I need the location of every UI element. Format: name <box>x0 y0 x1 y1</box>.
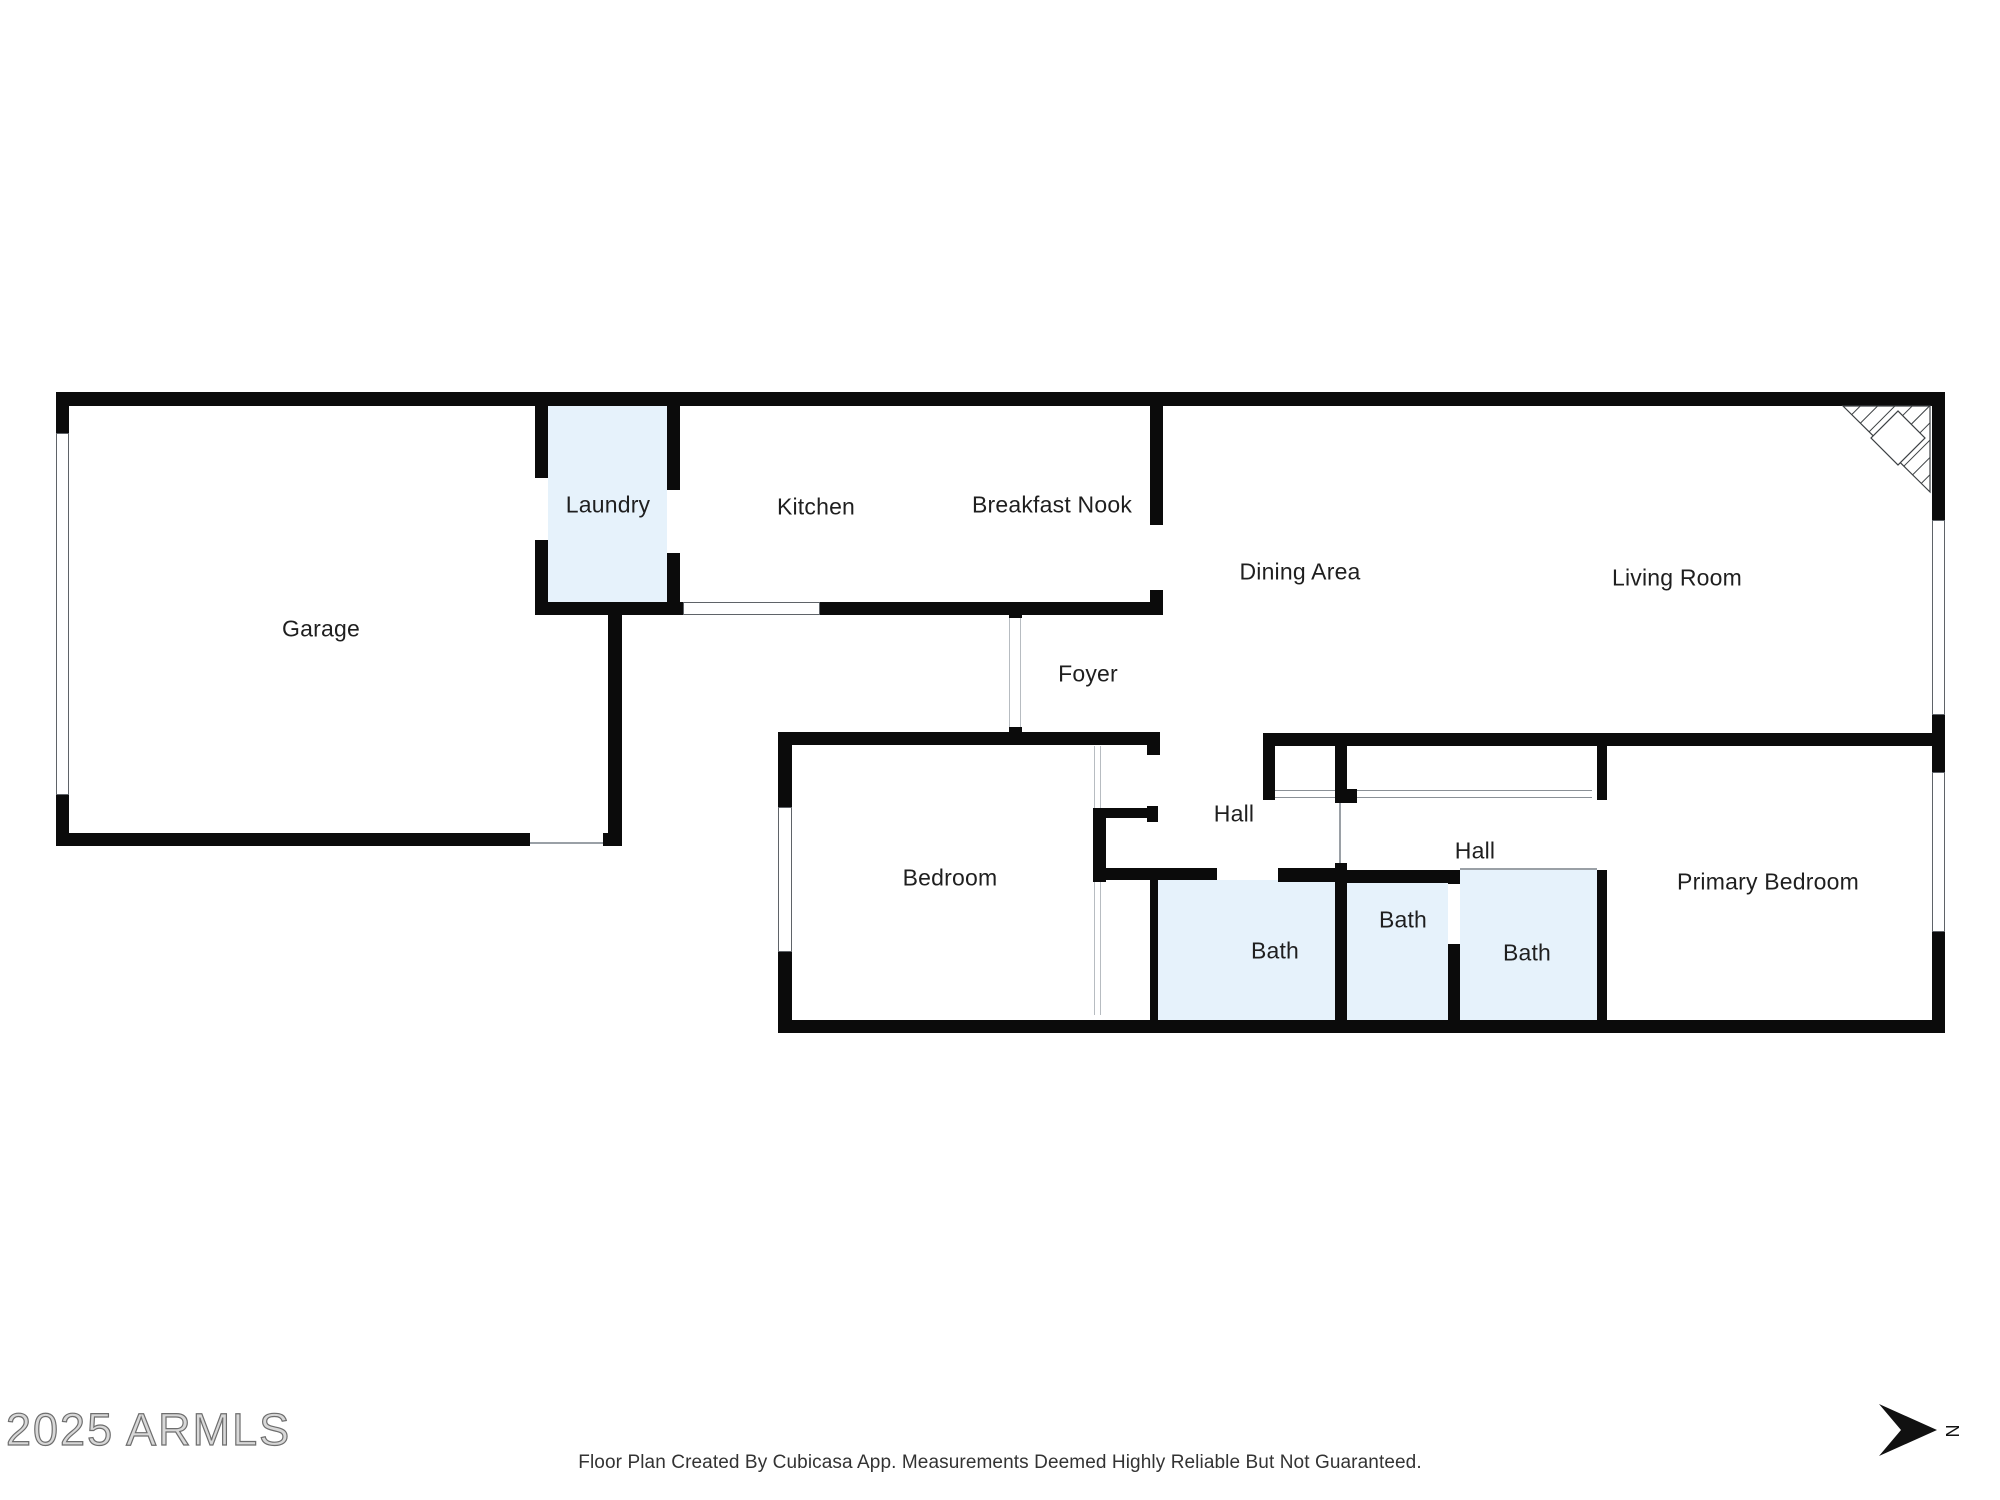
armls-watermark: 2025 ARMLS <box>6 1404 291 1456</box>
north-label: N <box>1942 1425 1962 1438</box>
floorplan-canvas: N Garage Laundry Kitchen Breakfast Nook … <box>0 0 2000 1500</box>
cubicasa-disclaimer: Floor Plan Created By Cubicasa App. Meas… <box>0 1452 2000 1474</box>
fireplace-and-north-arrow-layer: N <box>0 0 2000 1500</box>
north-arrow-icon <box>1879 1404 1937 1456</box>
